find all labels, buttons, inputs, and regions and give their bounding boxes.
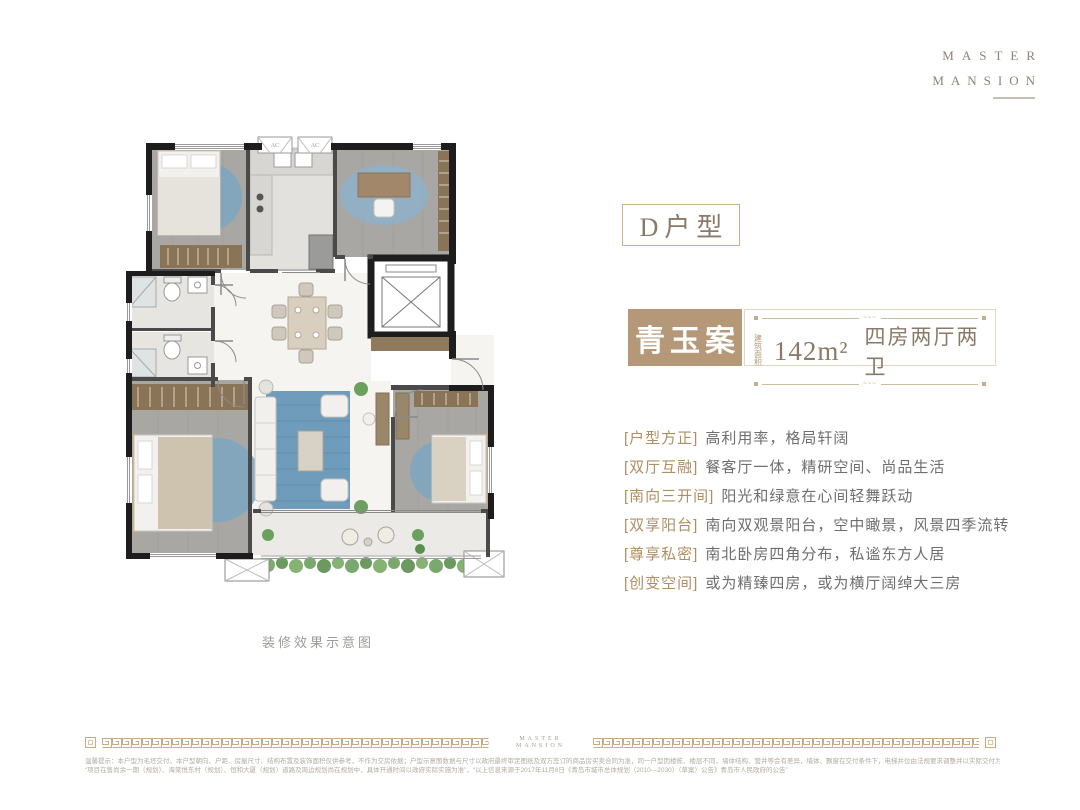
brand-logo: MASTER MANSION	[915, 48, 1035, 99]
feature-row: [双享阳台]南向双观景阳台，空中瞰景，风景四季流转	[624, 511, 1024, 540]
feature-row: [创变空间]或为精臻四房，或为横厅阔绰大三房	[624, 569, 1024, 598]
floorplan-drawing: AC AC	[118, 135, 518, 615]
unit-name-badge: 青玉案	[628, 309, 742, 366]
feature-tag: [创变空间]	[624, 575, 698, 592]
ac-platform-bottomleft	[225, 559, 269, 581]
unit-title: D户型	[640, 207, 729, 244]
feature-tag: [户型方正]	[624, 430, 698, 447]
feature-tag: [尊享私密]	[624, 546, 698, 563]
elevator-shaft	[371, 258, 451, 351]
disclaimer-line1: 温馨提示：本户型为毛坯交付，本户型朝向、户距、房屋尺寸、结构布置及装饰面积仅供参…	[85, 757, 1000, 766]
area-spec-row: 建筑面积 142m² 四房两厅两卫	[754, 321, 986, 381]
seal-stamp-right	[985, 737, 996, 748]
feature-desc: 阳光和绿意在心间轻舞跃动	[721, 488, 913, 505]
area-spec-box: ~~~ 建筑面积 142m² 四房两厅两卫 ~~~	[744, 309, 996, 366]
feature-desc: 餐客厅一体，精研空间、尚品生活	[705, 459, 945, 476]
feature-tag: [双厅互融]	[624, 459, 698, 476]
feature-tag: [南向三开间]	[624, 488, 714, 505]
brand-line2: MANSION	[915, 73, 1042, 89]
logo-underline	[993, 97, 1035, 99]
feature-row: [尊享私密]南北卧房四角分布，私谧东方人居	[624, 540, 1024, 569]
feature-desc: 南向双观景阳台，空中瞰景，风景四季流转	[705, 517, 1009, 534]
ac-label-2: AC	[311, 143, 319, 149]
feature-list: [户型方正]高利用率，格局轩阔 [双厅互融]餐客厅一体，精研空间、尚品生活 [南…	[624, 424, 1024, 598]
area-value: 142m²	[774, 336, 849, 367]
disclaimer-line2: “项目在售尚余一期（规划）、海棠悦东村（规划）、恒和大厦（规划）道路及周边规划尚…	[85, 766, 1000, 775]
feature-row: [户型方正]高利用率，格局轩阔	[624, 424, 1024, 453]
meander-pattern-right	[593, 738, 980, 748]
garden-hedge	[261, 557, 482, 573]
disclaimer-text: 温馨提示：本户型为毛坯交付，本户型朝向、户距、房屋尺寸、结构布置及装饰面积仅供参…	[85, 757, 1000, 775]
area-label: 建筑面积	[754, 335, 770, 367]
brand-line1: MASTER	[915, 48, 1043, 64]
rooms-value: 四房两厅两卫	[864, 321, 986, 381]
feature-tag: [双享阳台]	[624, 517, 698, 534]
feature-desc: 或为精臻四房，或为横厅阔绰大三房	[705, 575, 961, 592]
deco-line-bottom: ~~~	[754, 381, 986, 387]
feature-row: [双厅互融]餐客厅一体，精研空间、尚品生活	[624, 453, 1024, 482]
plan-caption: 装修效果示意图	[118, 632, 518, 651]
footer-brand: MASTERMANSION	[495, 736, 587, 750]
feature-desc: 高利用率，格局轩阔	[705, 430, 849, 447]
ac-platform-bottomright	[464, 551, 504, 577]
unit-title-box: D户型	[622, 204, 740, 246]
feature-row: [南向三开间]阳光和绿意在心间轻舞跃动	[624, 482, 1024, 511]
seal-stamp-left	[85, 737, 96, 748]
footer-border: MASTERMANSION	[85, 736, 996, 749]
poster-page: MASTER MANSION	[0, 0, 1080, 810]
unit-name: 青玉案	[635, 316, 740, 360]
feature-desc: 南北卧房四角分布，私谧东方人居	[705, 546, 945, 563]
meander-pattern-left	[102, 738, 489, 748]
ac-label-1: AC	[271, 143, 279, 149]
